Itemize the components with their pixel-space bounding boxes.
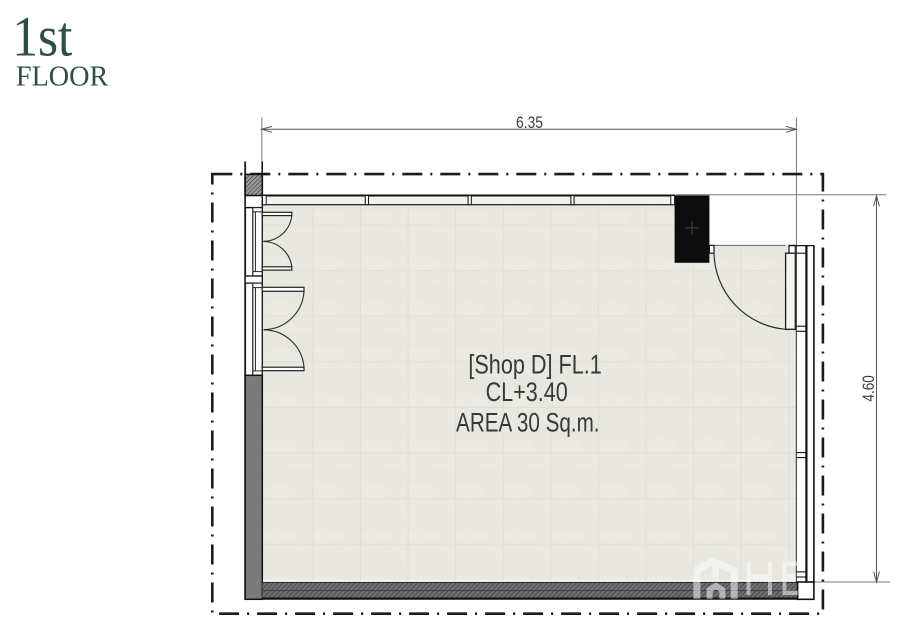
svg-text:1st: 1st xyxy=(12,4,72,68)
svg-text:CL+3.40: CL+3.40 xyxy=(486,378,568,408)
svg-text:FLOOR: FLOOR xyxy=(16,62,109,93)
svg-text:AREA 30 Sq.m.: AREA 30 Sq.m. xyxy=(456,409,599,438)
svg-text:[Shop D] FL.1: [Shop D] FL.1 xyxy=(468,350,601,380)
svg-text:6.35: 6.35 xyxy=(516,114,543,132)
svg-text:4.60: 4.60 xyxy=(860,375,878,401)
